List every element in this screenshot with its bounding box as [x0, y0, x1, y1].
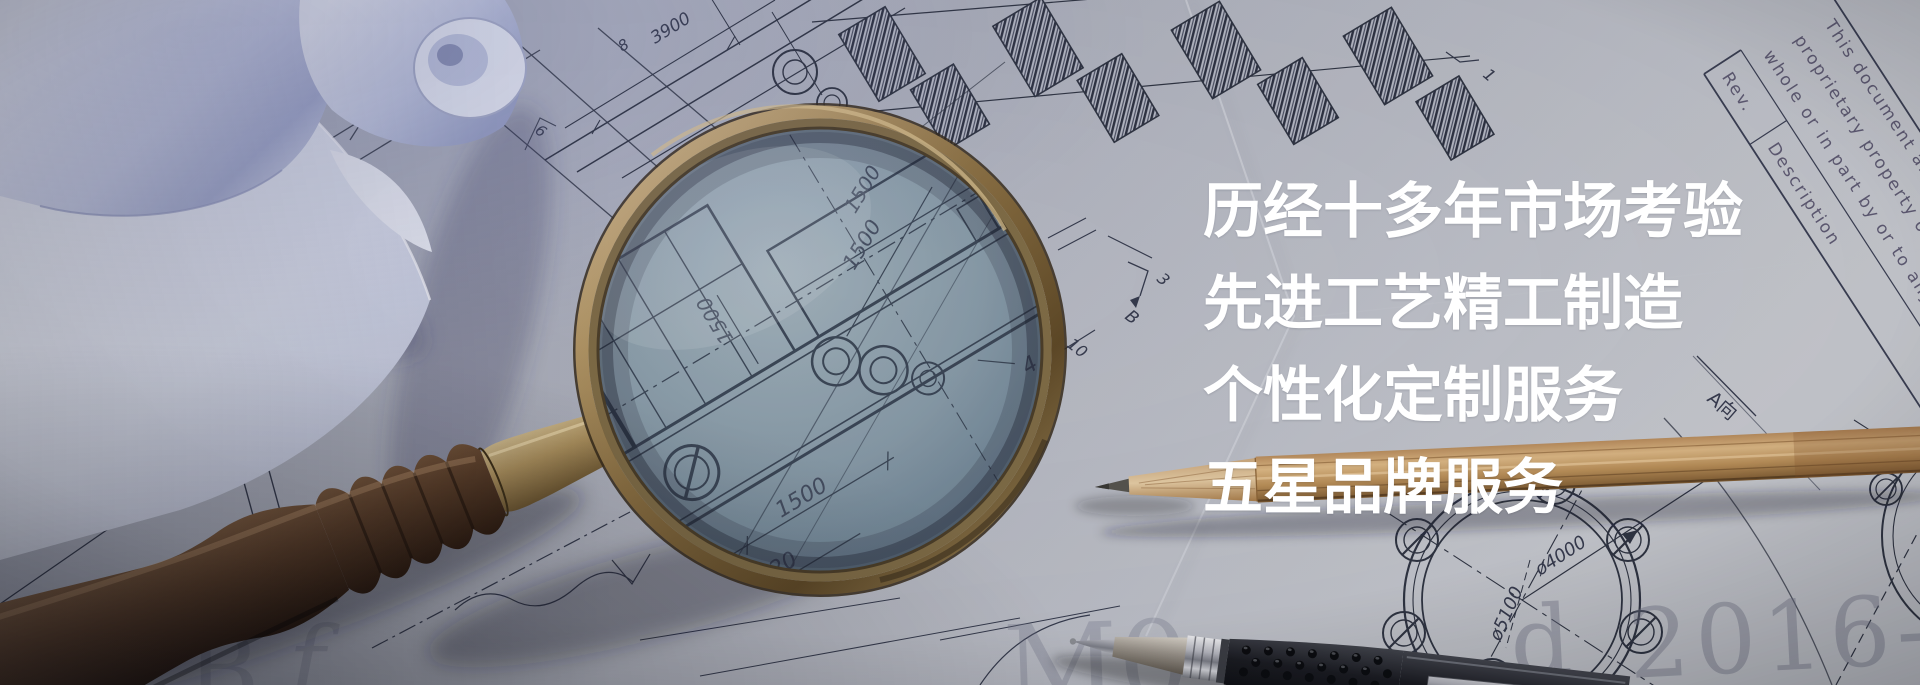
- hero-headline: 历经十多年市场考验 先进工艺精工制造 个性化定制服务 五星品牌服务: [1203, 166, 1743, 534]
- headline-line-3: 个性化定制服务: [1203, 350, 1743, 442]
- headline-line-4: 五星品牌服务: [1203, 442, 1743, 534]
- hero-banner: 600 6 3900 8: [0, 0, 1920, 685]
- headline-line-1: 历经十多年市场考验: [1203, 166, 1743, 258]
- headline-line-2: 先进工艺精工制造: [1203, 258, 1743, 350]
